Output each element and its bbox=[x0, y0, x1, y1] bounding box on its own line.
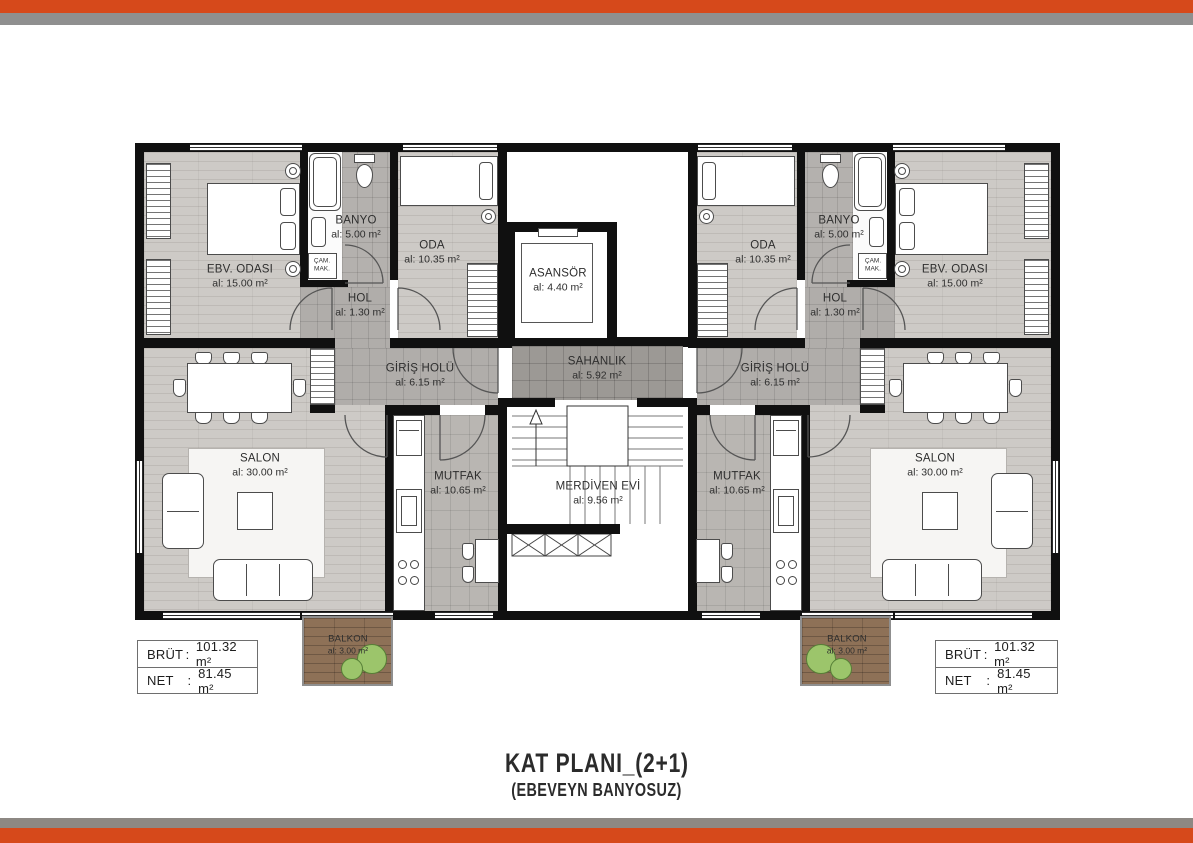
plant-leaf bbox=[830, 658, 852, 680]
door-arcs bbox=[135, 143, 512, 620]
brut-label: BRÜT bbox=[945, 647, 981, 662]
door-arcs bbox=[683, 143, 1060, 620]
net-row: NET : 81.45 m² bbox=[936, 667, 1057, 693]
elevator-car bbox=[521, 243, 593, 323]
elevator-door bbox=[538, 228, 578, 237]
wall bbox=[507, 611, 688, 620]
colon: : bbox=[183, 647, 192, 662]
balcony-right bbox=[800, 616, 891, 686]
brut-value: 101.32 m² bbox=[196, 639, 248, 669]
net-row: NET : 81.45 m² bbox=[138, 667, 257, 693]
core-area bbox=[507, 143, 688, 620]
brut-value: 101.32 m² bbox=[994, 639, 1048, 669]
wall bbox=[507, 143, 688, 152]
balcony-left bbox=[302, 616, 393, 686]
colon: : bbox=[185, 673, 194, 688]
info-box-right: BRÜT : 101.32 m² NET : 81.45 m² bbox=[935, 640, 1058, 694]
net-label: NET bbox=[147, 673, 185, 688]
plan-title: KAT PLANI_(2+1) (EBEVEYN BANYOSUZ) bbox=[0, 748, 1193, 801]
brut-label: BRÜT bbox=[147, 647, 183, 662]
apartment-left bbox=[135, 143, 512, 620]
info-box-left: BRÜT : 101.32 m² NET : 81.45 m² bbox=[137, 640, 258, 694]
plant-leaf bbox=[341, 658, 363, 680]
plant bbox=[339, 642, 389, 682]
brut-row: BRÜT : 101.32 m² bbox=[936, 641, 1057, 667]
net-label: NET bbox=[945, 673, 983, 688]
colon: : bbox=[981, 647, 990, 662]
brut-row: BRÜT : 101.32 m² bbox=[138, 641, 257, 667]
floor-plan-page: BRÜT : 101.32 m² NET : 81.45 m² BRÜT : 1… bbox=[0, 0, 1193, 843]
wall bbox=[505, 524, 620, 534]
plan-title-line1: KAT PLANI_(2+1) bbox=[505, 748, 689, 779]
sahanlik-floor bbox=[512, 346, 683, 400]
stairs bbox=[507, 400, 690, 560]
net-value: 81.45 m² bbox=[198, 666, 248, 696]
plant bbox=[804, 642, 854, 682]
apartment-right bbox=[683, 143, 1060, 620]
floor-plan: BRÜT : 101.32 m² NET : 81.45 m² BRÜT : 1… bbox=[0, 0, 1193, 843]
net-value: 81.45 m² bbox=[997, 666, 1048, 696]
plan-title-line2: (EBEVEYN BANYOSUZ) bbox=[119, 780, 1073, 801]
colon: : bbox=[983, 673, 993, 688]
